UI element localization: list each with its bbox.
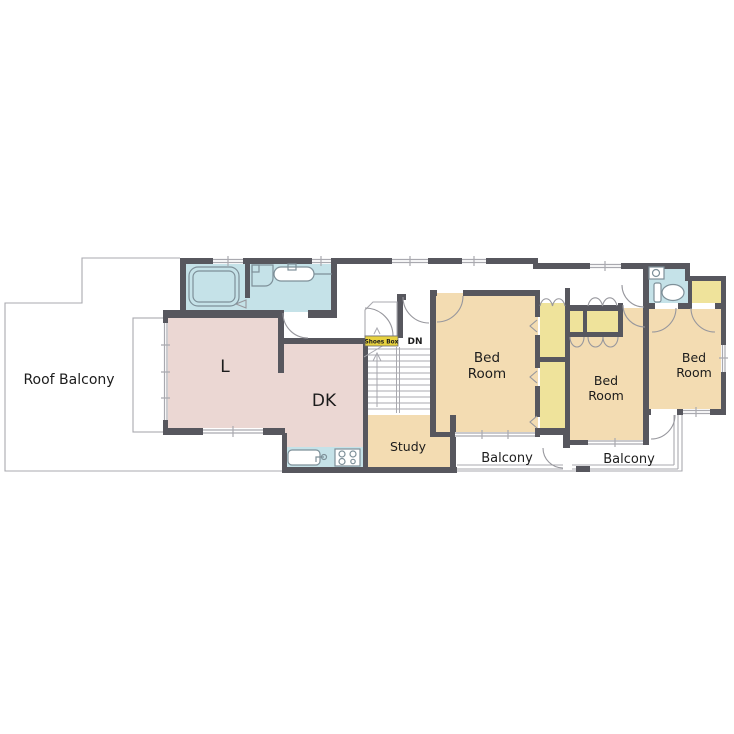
door-stair-hall <box>403 297 429 323</box>
closet-right-fill <box>692 281 721 303</box>
label-shoes-box: Shoes Box <box>365 340 399 346</box>
label-living: L <box>220 357 230 377</box>
label-stairs-down: DN <box>407 337 422 347</box>
door-washroom <box>283 313 308 338</box>
label-dining-kitchen: DK <box>312 391 337 411</box>
label-balcony-left: Balcony <box>481 451 533 466</box>
window-hall-top-2 <box>462 256 486 266</box>
closet-column-fill <box>540 303 565 428</box>
window-hall-top-1 <box>392 256 428 266</box>
stairs <box>364 345 430 413</box>
stove-icon <box>335 449 360 466</box>
room-bedroom2-entry-fill <box>623 308 643 341</box>
window-hall-top-3 <box>590 261 621 271</box>
label-bedroom2-line2: Room <box>588 388 624 403</box>
floor-plan: Roof Balcony L DK Study Bed Room Bed Roo… <box>0 0 734 734</box>
label-bedroom1-line2: Room <box>468 366 506 382</box>
label-bedroom3-line2: Room <box>676 365 712 380</box>
door-bedroom3-balcony <box>651 415 675 439</box>
door-toilet <box>622 285 644 307</box>
corner-sink-icon <box>649 267 664 279</box>
label-bedroom2-line1: Bed <box>594 373 618 388</box>
shoes-closet <box>365 302 397 336</box>
label-balcony-right: Balcony <box>603 452 655 467</box>
label-bedroom1-line1: Bed <box>474 350 500 366</box>
label-bedroom3-line1: Bed <box>682 350 706 365</box>
closet-b-fill <box>587 311 618 332</box>
toilet-icon <box>654 283 684 302</box>
closet-a-fill <box>570 311 583 332</box>
floor-plan-drawing: Roof Balcony L DK Study Bed Room Bed Roo… <box>0 0 734 734</box>
label-study: Study <box>390 439 427 454</box>
label-roof-balcony: Roof Balcony <box>23 372 114 388</box>
closet-b-doors-hall <box>588 298 617 306</box>
